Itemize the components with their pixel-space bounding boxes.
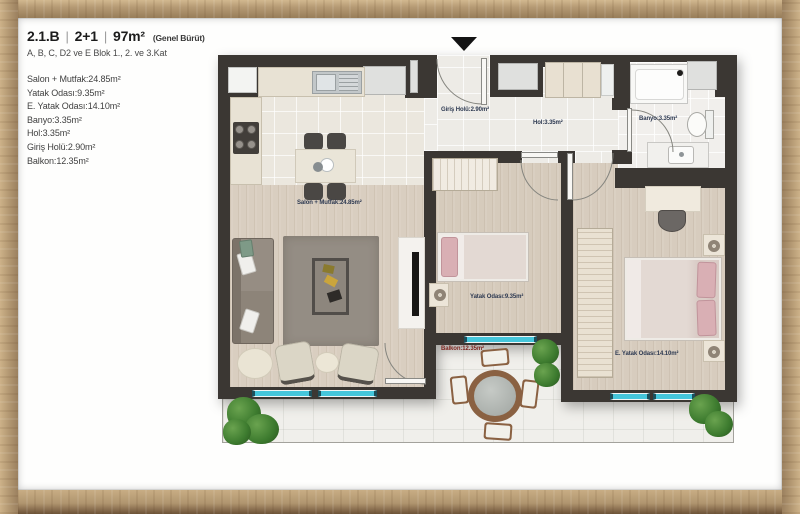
plant-bush	[534, 363, 560, 387]
plan-area-note: (Genel Bürüt)	[153, 33, 205, 43]
window-kitchen	[363, 66, 406, 95]
window-master-right	[653, 393, 695, 400]
kitchen-sink	[312, 71, 362, 94]
balcony-round-table	[468, 370, 522, 422]
nightstand-lamp	[708, 240, 720, 252]
stove-burner	[247, 140, 256, 149]
refrigerator	[228, 67, 257, 93]
window-entrance-right	[498, 63, 538, 90]
room-list-item: Balkon:12.35m²	[27, 155, 205, 169]
window-bedroom	[464, 336, 537, 343]
nightstand-lamp	[708, 346, 720, 358]
room-list-item: Banyo:3.35m²	[27, 114, 205, 128]
dining-chair	[304, 183, 323, 200]
cooktop-stove	[233, 122, 259, 154]
bed-pillow	[441, 237, 458, 277]
wall-corner-top-right	[715, 55, 737, 97]
frame-edge-bottom	[0, 490, 800, 514]
balcony-chair	[480, 348, 509, 367]
hall-closet-white-unit	[601, 64, 614, 96]
coffee-table	[312, 258, 349, 315]
dining-chair	[327, 133, 346, 150]
title-separator: |	[104, 29, 107, 44]
hallway-kitchen-passage	[424, 98, 437, 151]
dining-chair	[304, 133, 323, 150]
bedroom-door-leaf	[521, 152, 558, 158]
stove-burner	[235, 140, 244, 149]
room-area-list: Salon + Mutfak:24.85m² Yatak Odası:9.35m…	[27, 73, 205, 168]
room-list-item: Giriş Holü:2.90m²	[27, 141, 205, 155]
decor-item	[324, 275, 338, 288]
side-table-round	[237, 348, 273, 379]
table-bowl	[313, 162, 323, 172]
desk-chair	[658, 210, 686, 232]
plant-bush	[705, 411, 733, 437]
plan-gross-area: 97m²	[113, 28, 145, 44]
plan-subtitle: A, B, C, D2 ve E Blok 1., 2. ve 3.Kat	[27, 48, 205, 58]
sink-basin	[316, 74, 336, 91]
chair-cushion	[452, 377, 467, 402]
plan-code: 2.1.B	[27, 28, 59, 44]
stove-burner	[235, 125, 244, 134]
label-salon-mutfak: Salon + Mutfak:24.85m²	[297, 200, 362, 206]
bedroom-wardrobe	[432, 158, 498, 191]
title-separator: |	[65, 29, 68, 44]
label-e-yatak-odasi: E. Yatak Odası:14.10m²	[615, 351, 678, 357]
plan-layout-type: 2+1	[75, 28, 98, 44]
decor-item	[322, 264, 334, 274]
label-banyo: Banyo:3.35m²	[639, 116, 677, 122]
window-entrance-slot	[410, 60, 418, 93]
nightstand-lamp	[434, 289, 446, 301]
label-hol: Hol:3.35m²	[533, 120, 563, 126]
frame-edge-left	[0, 0, 18, 514]
label-balkon: Balkon:12.35m²	[441, 346, 484, 352]
entrance-door-leaf	[481, 58, 487, 105]
nightstand	[429, 283, 449, 307]
bathroom-vanity	[647, 142, 709, 168]
vanity-faucet	[679, 152, 684, 157]
sofa-pillow-green	[239, 239, 254, 258]
room-list-item: Yatak Odası:9.35m²	[27, 87, 205, 101]
master-door-opening	[575, 151, 613, 163]
stove-burner	[247, 125, 256, 134]
wall-bathroom-door-lower	[612, 150, 632, 164]
label-yatak-odasi: Yatak Odası:9.35m²	[470, 294, 523, 300]
bathroom-door-leaf	[627, 108, 632, 152]
master-door-leaf	[567, 153, 573, 200]
chair-cushion	[486, 424, 511, 439]
dining-table	[295, 149, 356, 183]
nightstand	[703, 340, 725, 362]
entrance-arrow-icon	[451, 37, 477, 51]
window-living-left	[252, 390, 312, 397]
dining-chair	[327, 183, 346, 200]
balcony-door-leaf	[385, 378, 426, 384]
balcony-chair	[450, 375, 470, 405]
tv	[412, 252, 419, 316]
balcony-chair	[483, 422, 512, 441]
chair-cushion	[482, 350, 507, 365]
frame-edge-top	[0, 0, 800, 18]
frame-edge-right	[782, 0, 800, 514]
plan-info-block: 2.1.B | 2+1 | 97m² (Genel Bürüt) A, B, C…	[27, 28, 205, 168]
toilet	[687, 112, 707, 137]
bed-pillow	[696, 262, 716, 299]
nightstand	[703, 234, 725, 256]
window-living-right	[318, 390, 377, 397]
shower	[630, 64, 688, 104]
master-wardrobe	[577, 228, 613, 378]
wall-bathroom-bottom	[615, 168, 727, 188]
label-giris-holu: Giriş Holü:2.90m²	[441, 107, 489, 113]
plan-title: 2.1.B | 2+1 | 97m² (Genel Bürüt)	[27, 28, 205, 44]
decor-item	[327, 289, 342, 303]
chair-cushion	[522, 381, 538, 406]
framed-floor-plan-page: { "header": { "code": "2.1.B", "sep": "|…	[0, 0, 800, 514]
shower-head-icon	[677, 70, 683, 76]
bed-pillow	[696, 300, 716, 337]
window-master-left	[610, 393, 650, 400]
sink-drainer	[339, 74, 358, 91]
room-list-item: Salon + Mutfak:24.85m²	[27, 73, 205, 87]
room-list-item: Hol:3.35m²	[27, 127, 205, 141]
armchair	[274, 340, 316, 386]
desk	[645, 186, 701, 212]
plant-bush	[223, 419, 251, 445]
room-list-item: E. Yatak Odası:14.10m²	[27, 100, 205, 114]
window-bathroom	[687, 61, 717, 90]
floor-plan: Salon + Mutfak:24.85m² Giriş Holü:2.90m²…	[215, 50, 737, 453]
small-round-table	[315, 352, 339, 373]
hall-closet	[545, 62, 601, 98]
armchair	[336, 342, 380, 386]
plant-bush	[532, 339, 559, 365]
